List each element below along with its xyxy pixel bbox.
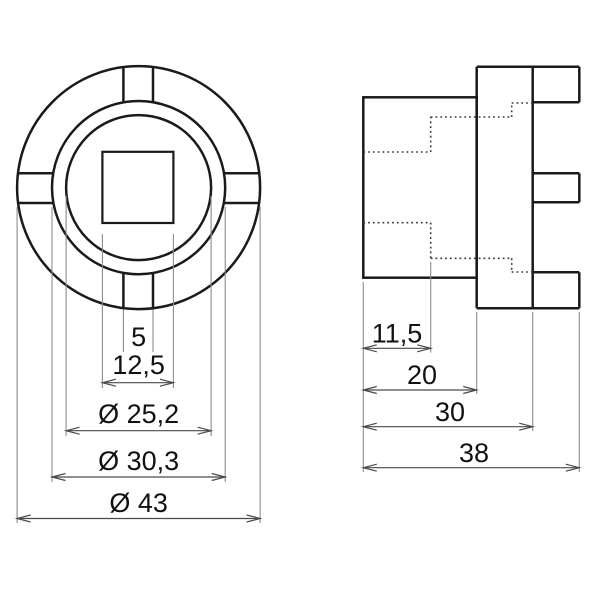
dim-label-outer-diameter: Ø 43 [109,488,168,518]
side-view: 11,5 20 30 38 [363,67,579,472]
ring-circle-30-3 [52,101,225,274]
front-view-outline [17,66,260,309]
outer-circle-43 [17,66,260,309]
sleeve-body [363,97,476,277]
dim-label-bore-diameter: Ø 25,2 [98,399,179,429]
hidden-bore-lines [363,103,532,272]
dim-label-sleeve-length: 20 [407,360,437,390]
dim-label-pocket-depth: 11,5 [372,319,423,349]
dim-label-slot-width: 5 [131,322,146,352]
front-view: 5 12,5 Ø 25,2 Ø 30,3 Ø 43 [17,66,260,523]
square-drive-hole [102,152,173,223]
dim-label-length-to-tabs: 30 [435,397,465,427]
socket-drawing: 5 12,5 Ø 25,2 Ø 30,3 Ø 43 [0,0,600,600]
dim-label-square-drive: 12,5 [112,350,165,380]
front-dimension-labels: 5 12,5 Ø 25,2 Ø 30,3 Ø 43 [98,322,179,518]
technical-drawing-canvas: 5 12,5 Ø 25,2 Ø 30,3 Ø 43 [0,0,600,600]
dim-label-overall-length: 38 [459,438,489,468]
side-view-outline [363,67,579,309]
bore-circle-25-2 [66,115,211,260]
dim-label-ring-diameter: Ø 30,3 [98,446,179,476]
